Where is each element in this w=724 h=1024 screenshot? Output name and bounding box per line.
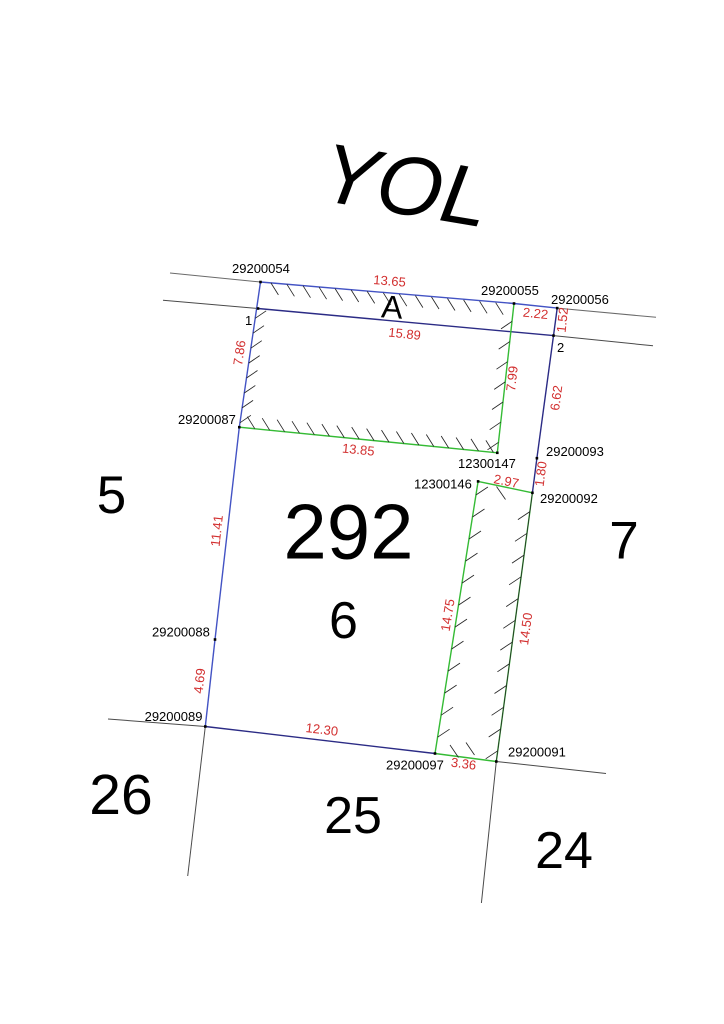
svg-text:7: 7 <box>609 511 638 570</box>
svg-text:29200097: 29200097 <box>386 758 444 773</box>
svg-text:24: 24 <box>535 822 593 880</box>
svg-text:292: 292 <box>283 488 413 576</box>
svg-text:29200091: 29200091 <box>508 745 566 760</box>
svg-text:29200092: 29200092 <box>540 491 598 506</box>
svg-text:29200093: 29200093 <box>546 444 604 459</box>
svg-text:4.69: 4.69 <box>191 668 209 695</box>
svg-text:7.99: 7.99 <box>503 365 521 392</box>
svg-text:2.22: 2.22 <box>522 305 549 323</box>
svg-text:A: A <box>380 288 404 325</box>
svg-text:29200054: 29200054 <box>232 261 290 276</box>
svg-text:12300147: 12300147 <box>458 456 516 471</box>
svg-text:29200087: 29200087 <box>178 412 236 427</box>
svg-text:29200088: 29200088 <box>152 625 210 640</box>
svg-text:13.65: 13.65 <box>373 272 407 290</box>
svg-text:5: 5 <box>97 466 126 525</box>
svg-text:26: 26 <box>89 763 152 827</box>
svg-text:29200056: 29200056 <box>551 292 609 307</box>
svg-text:1.52: 1.52 <box>554 307 572 334</box>
svg-text:1: 1 <box>245 313 252 328</box>
svg-text:25: 25 <box>324 787 382 845</box>
svg-text:2: 2 <box>557 340 564 355</box>
svg-text:29200055: 29200055 <box>481 283 539 298</box>
svg-text:29200089: 29200089 <box>145 709 203 724</box>
svg-text:12300146: 12300146 <box>414 477 472 492</box>
svg-text:6: 6 <box>329 592 358 650</box>
